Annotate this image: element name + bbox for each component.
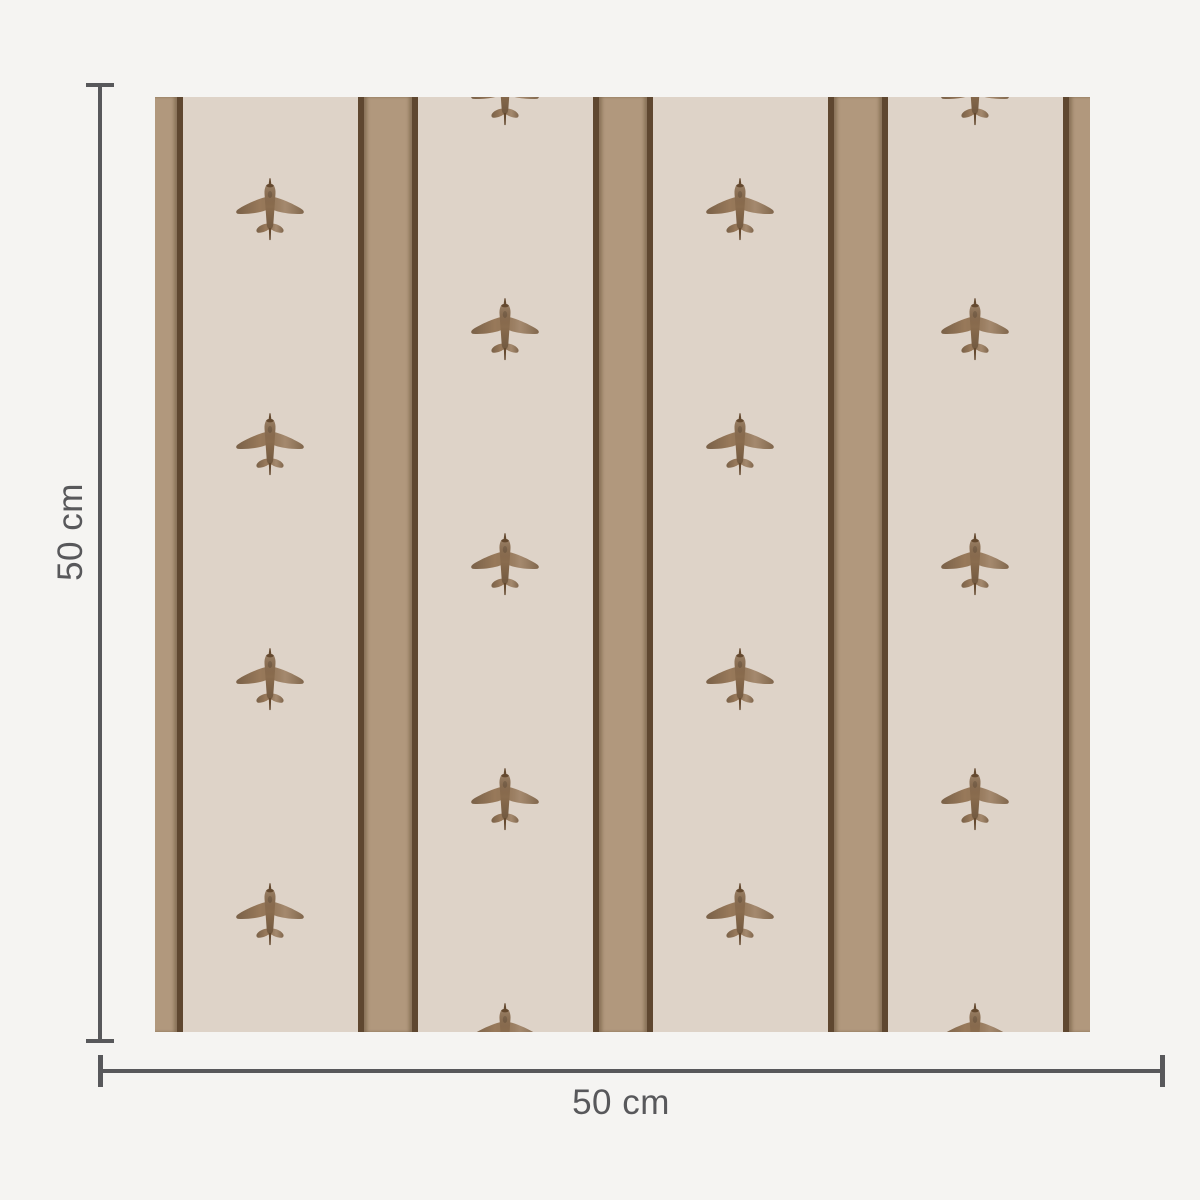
horizontal-dimension-cap-right <box>1160 1055 1165 1087</box>
airplane-icon <box>937 1002 1013 1032</box>
product-dimension-diagram: 50 cm 50 cm <box>0 0 1200 1200</box>
wallpaper-stripe <box>358 97 418 1032</box>
airplane-icon <box>467 767 543 833</box>
airplane-icon <box>232 177 308 243</box>
airplane-icon <box>232 412 308 478</box>
width-label: 50 cm <box>471 1084 771 1122</box>
airplane-icon <box>937 97 1013 128</box>
airplane-icon <box>702 647 778 713</box>
wallpaper-stripe <box>828 97 888 1032</box>
wallpaper-swatch <box>155 97 1090 1032</box>
airplane-icon <box>937 767 1013 833</box>
wallpaper-stripe <box>1063 97 1090 1032</box>
wallpaper-stripe <box>593 97 653 1032</box>
airplane-icon <box>467 532 543 598</box>
airplane-icon <box>232 882 308 948</box>
horizontal-dimension-cap-left <box>98 1055 103 1087</box>
airplane-icon <box>937 532 1013 598</box>
airplane-icon <box>702 412 778 478</box>
vertical-dimension-cap-bottom <box>86 1039 114 1043</box>
airplane-icon <box>467 1002 543 1032</box>
vertical-dimension-line <box>98 85 102 1042</box>
airplane-icon <box>937 297 1013 363</box>
airplane-icon <box>702 177 778 243</box>
height-label: 50 cm <box>52 382 90 682</box>
horizontal-dimension-line <box>100 1069 1164 1073</box>
airplane-icon <box>467 97 543 128</box>
airplane-icon <box>702 882 778 948</box>
wallpaper-stripe <box>155 97 183 1032</box>
airplane-icon <box>467 297 543 363</box>
airplane-icon <box>232 647 308 713</box>
vertical-dimension-cap-top <box>86 83 114 87</box>
